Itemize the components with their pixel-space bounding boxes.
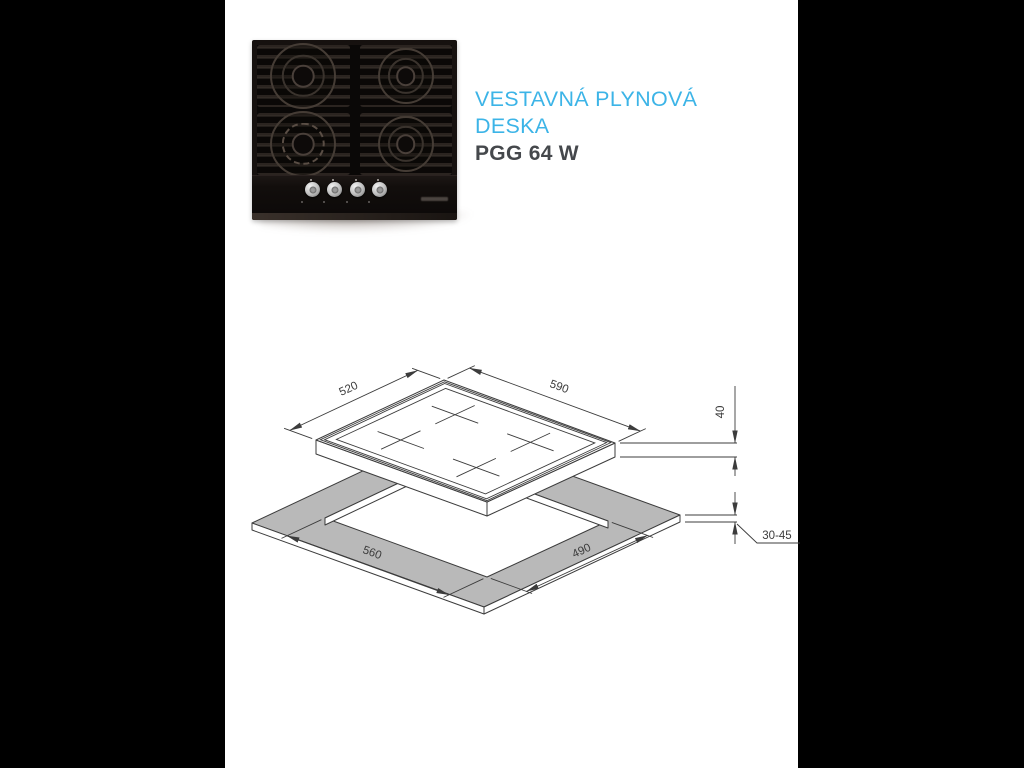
dimension-hob-height: 40 bbox=[620, 386, 737, 476]
dim-label-40: 40 bbox=[715, 406, 727, 419]
dim-label-520: 520 bbox=[338, 380, 360, 399]
dim-label-590: 590 bbox=[548, 378, 570, 396]
dimension-worktop-thickness: 30-45 bbox=[685, 492, 800, 544]
dim-label-30-45: 30-45 bbox=[762, 530, 791, 542]
datasheet-page: VESTAVNÁ PLYNOVÁ DESKA PGG 64 W bbox=[0, 0, 1024, 768]
installation-drawing: 520 590 560 490 40 bbox=[0, 0, 1024, 768]
